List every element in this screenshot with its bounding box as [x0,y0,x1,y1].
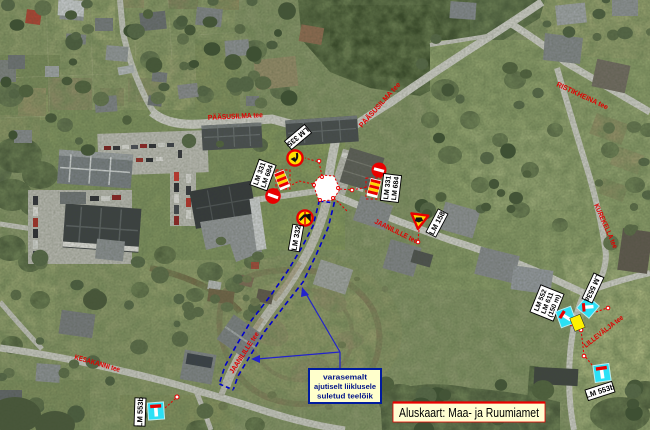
svg-text:LM 553b: LM 553b [135,396,145,427]
svg-text:Aluskaart: Maa- ja Ruumiamet: Aluskaart: Maa- ja Ruumiamet [399,406,539,420]
svg-text:ajutiselt liiklusele: ajutiselt liiklusele [314,382,376,391]
svg-text:suletud teelõik: suletud teelõik [317,392,374,401]
svg-text:varasemalt: varasemalt [323,373,368,382]
